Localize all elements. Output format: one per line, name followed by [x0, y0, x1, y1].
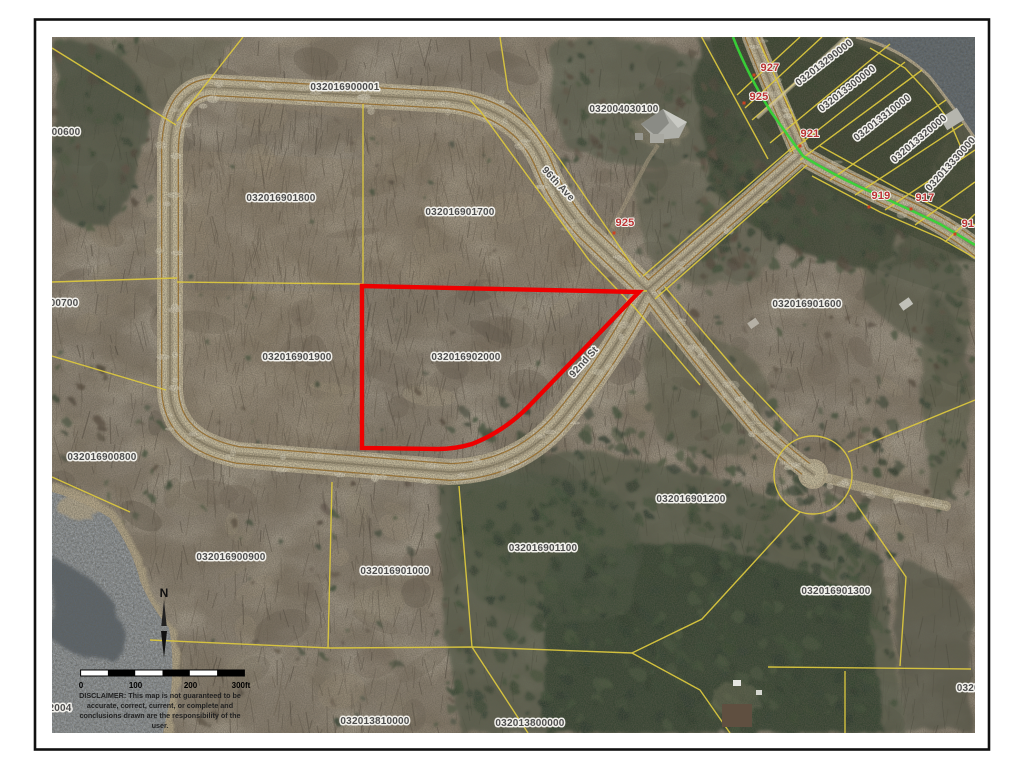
svg-text:032016901900: 032016901900: [262, 352, 331, 363]
svg-text:917: 917: [916, 192, 935, 204]
svg-text:925: 925: [750, 91, 769, 103]
svg-text:925: 925: [616, 217, 635, 229]
svg-text:919: 919: [872, 190, 891, 202]
svg-text:921: 921: [801, 128, 820, 140]
svg-text:032016902000: 032016902000: [431, 352, 500, 363]
svg-text:032013810000: 032013810000: [340, 716, 409, 727]
svg-text:032016901100: 032016901100: [509, 543, 578, 554]
svg-text:032016901200: 032016901200: [656, 494, 725, 505]
svg-text:conclusions drawn are the resp: conclusions drawn are the responsibility…: [80, 711, 241, 720]
svg-text:032013800000: 032013800000: [495, 718, 564, 729]
svg-text:032016900800: 032016900800: [67, 452, 136, 463]
svg-text:DISCLAIMER: This map is not gu: DISCLAIMER: This map is not guaranteed t…: [79, 691, 241, 700]
svg-text:200: 200: [184, 681, 198, 690]
svg-text:032016901300: 032016901300: [801, 586, 870, 597]
svg-text:032016901700: 032016901700: [425, 207, 494, 218]
svg-text:user.: user.: [152, 721, 169, 730]
svg-text:N: N: [160, 586, 169, 600]
svg-text:032016900900: 032016900900: [196, 552, 265, 563]
svg-text:032016901800: 032016901800: [246, 193, 315, 204]
svg-text:100: 100: [129, 681, 143, 690]
svg-text:927: 927: [761, 62, 780, 74]
svg-text:accurate, correct, current, or: accurate, correct, current, or complete …: [87, 701, 233, 710]
svg-text:032004030100: 032004030100: [589, 104, 658, 115]
svg-text:00700: 00700: [50, 298, 79, 309]
svg-text:300ft: 300ft: [232, 681, 251, 690]
svg-text:0: 0: [79, 681, 84, 690]
svg-text:032016901600: 032016901600: [772, 299, 841, 310]
svg-text:00600: 00600: [52, 127, 81, 138]
svg-text:032016901000: 032016901000: [360, 566, 429, 577]
svg-text:032016900001: 032016900001: [310, 82, 379, 93]
svg-text:91: 91: [962, 218, 975, 230]
